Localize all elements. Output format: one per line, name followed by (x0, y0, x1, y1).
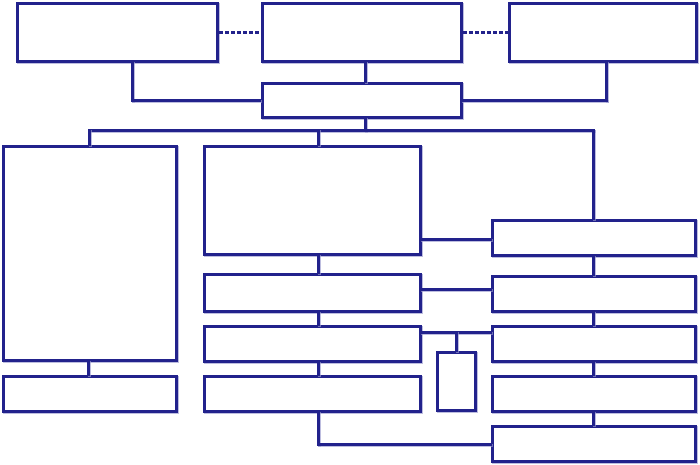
node-mid-1 (203, 145, 422, 256)
edge-right2-right3-v (592, 311, 595, 326)
node-small-vertical (436, 351, 477, 412)
node-mid-3 (203, 325, 422, 363)
edge-rail-right1-v (592, 129, 595, 220)
flowchart-diagram (0, 0, 700, 465)
node-top-left (16, 2, 219, 63)
edge-mid2-mid3-v (317, 311, 320, 326)
edge-mid1-mid2-v (317, 254, 320, 274)
edge-mid4-right5-v (317, 411, 320, 446)
edge-lefttall-leftbottom-v (87, 360, 90, 376)
node-right-3 (491, 325, 697, 363)
node-right-5 (491, 425, 697, 463)
edge-right4-right5-v (592, 411, 595, 426)
node-right-4 (491, 375, 697, 413)
edge-topright-hub-v (605, 61, 608, 102)
edge-topcenter-topright-dashed (463, 31, 508, 34)
edge-topright-hub-h (461, 99, 608, 102)
edge-rail-lefttall-v (88, 129, 91, 146)
edge-rail-mid1-v (317, 129, 320, 146)
node-top-center (261, 2, 463, 63)
node-mid-4 (203, 375, 422, 413)
edge-right1-right2-v (592, 255, 595, 276)
node-left-bottom (2, 375, 178, 413)
edge-mid2-right2-h (420, 288, 492, 291)
node-mid-2 (203, 273, 422, 313)
edge-topleft-hub-v (131, 61, 134, 102)
edge-topleft-topcenter-dashed (219, 31, 261, 34)
distribution-rail (88, 129, 595, 132)
edge-mid1-right1-h (420, 238, 492, 241)
edge-topleft-hub-h (131, 99, 261, 102)
edge-right3-right4-v (592, 361, 595, 376)
node-left-tall (2, 145, 178, 362)
node-hub (261, 82, 463, 119)
edge-mid3-mid4-v (317, 361, 320, 376)
node-top-right (508, 2, 698, 63)
node-right-2 (491, 275, 697, 313)
edge-mid3-smallvertical-v (455, 331, 458, 352)
edge-mid4-right5-h (317, 443, 492, 446)
node-right-1 (491, 219, 697, 257)
edge-topcenter-hub-v (364, 61, 367, 83)
